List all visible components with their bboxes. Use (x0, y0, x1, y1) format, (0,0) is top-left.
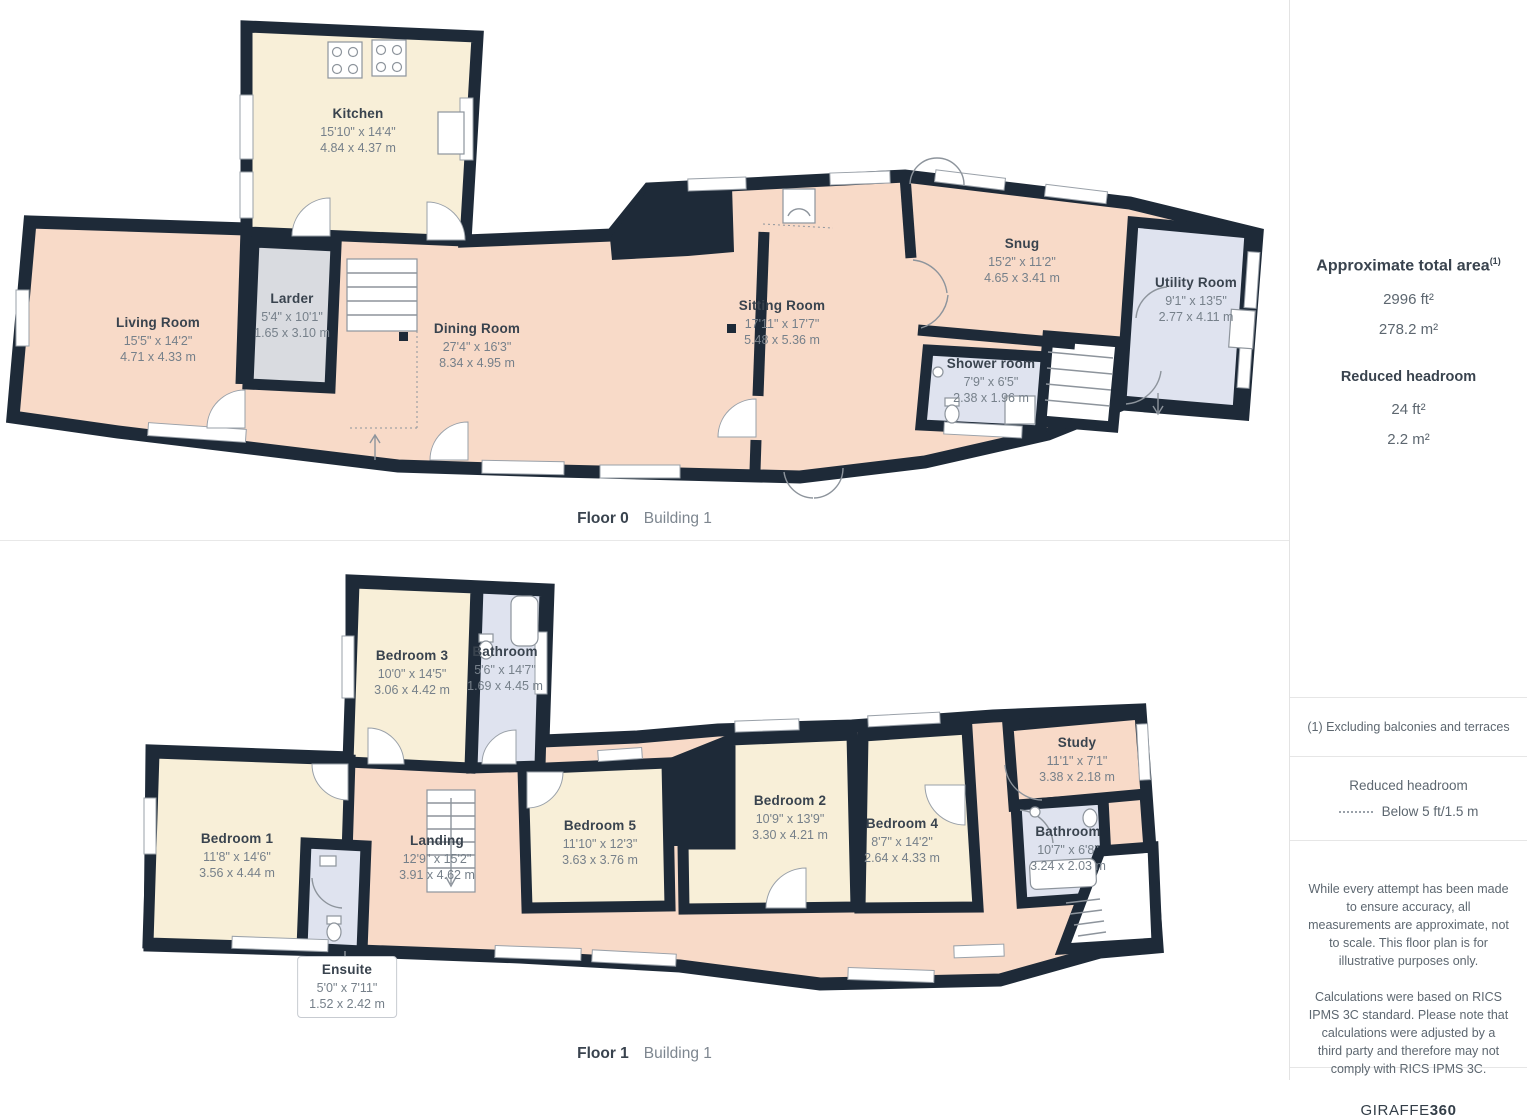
window (16, 290, 29, 346)
disclaimer-section: While every attempt has been made to ens… (1290, 841, 1527, 1068)
floor1-caption: Floor 1 Building 1 (0, 1045, 1289, 1063)
building-label: Building 1 (644, 510, 712, 528)
floorplan-canvas: Kitchen 15'10" x 14'4" 4.84 x 4.37 m Liv… (0, 0, 1289, 1080)
floor0-caption: Floor 0 Building 1 (0, 510, 1289, 528)
bedroom3-room (348, 583, 476, 768)
post (727, 324, 736, 333)
window (830, 171, 890, 185)
window (600, 465, 680, 478)
window (688, 177, 746, 191)
reduced-headroom-ft: 24 ft² (1290, 395, 1527, 425)
window (342, 636, 354, 698)
window (848, 968, 934, 983)
total-area-m: 278.2 m² (1290, 315, 1527, 345)
reduced-headroom-m: 2.2 m² (1290, 425, 1527, 455)
total-area-section: Approximate total area(1) 2996 ft² 278.2… (1290, 0, 1527, 698)
legend-row: Below 5 ft/1.5 m (1339, 804, 1479, 819)
fridge-icon (438, 112, 464, 154)
fireplace-icon (783, 189, 815, 223)
toilet-icon (479, 634, 493, 659)
footnote-section: (1) Excluding balconies and terraces (1290, 698, 1527, 757)
reduced-headroom-title: Reduced headroom (1290, 369, 1527, 385)
total-area-footnote-marker: (1) (1490, 256, 1501, 266)
logo-suffix-text: 360 (1430, 1102, 1457, 1119)
window (144, 798, 156, 854)
legend-title: Reduced headroom (1349, 778, 1468, 793)
sink-icon (1030, 807, 1040, 817)
window (735, 719, 799, 732)
info-sidebar: Approximate total area(1) 2996 ft² 278.2… (1289, 0, 1527, 1080)
dotted-line-icon (1339, 811, 1373, 813)
floor-label: Floor 1 (577, 1045, 629, 1063)
total-area-title-text: Approximate total area (1316, 257, 1489, 274)
footnote-text: (1) Excluding balconies and terraces (1307, 720, 1509, 734)
total-area-ft: 2996 ft² (1290, 285, 1527, 315)
bathtub-icon (1029, 858, 1096, 889)
staircase-floor1 (427, 790, 475, 892)
bathtub-icon (511, 596, 538, 646)
floor0-plan (13, 27, 1260, 498)
legend-label: Below 5 ft/1.5 m (1382, 804, 1479, 819)
window (240, 95, 253, 159)
room-size-imperial: 5'0" x 7'11" (317, 980, 378, 996)
giraffe360-logo: GIRAFFE360 (1308, 1102, 1509, 1119)
legend-section: Reduced headroom Below 5 ft/1.5 m (1290, 757, 1527, 841)
floor-label: Floor 0 (577, 510, 629, 528)
window (954, 944, 1004, 958)
window (1137, 724, 1151, 780)
disclaimer-paragraph-2: Calculations were based on RICS IPMS 3C … (1308, 988, 1509, 1078)
post (399, 332, 408, 341)
toilet-icon (1083, 809, 1097, 827)
total-area-title: Approximate total area(1) (1290, 256, 1527, 275)
toilet-icon (945, 398, 959, 423)
floor1-plan (144, 581, 1157, 984)
room-name: Ensuite (322, 962, 372, 977)
building-label: Building 1 (644, 1045, 712, 1063)
floor-section-divider (0, 540, 1289, 541)
logo-brand-text: GIRAFFE (1360, 1102, 1429, 1119)
wall-mass (610, 186, 734, 260)
sink-icon (320, 856, 336, 866)
room-label-ensuite-callout: Ensuite 5'0" x 7'11" 1.52 x 2.42 m (297, 956, 397, 1018)
window (495, 946, 581, 961)
sink-icon (933, 367, 943, 377)
larder-room (248, 242, 336, 388)
toilet-icon (327, 916, 341, 941)
study-room (1008, 714, 1146, 806)
room-size-metric: 1.52 x 2.42 m (309, 996, 385, 1012)
utility-sink-icon (1229, 309, 1256, 349)
stairwell-floor0 (1041, 336, 1121, 427)
window (482, 460, 564, 474)
window (240, 172, 253, 218)
window (598, 747, 643, 761)
disclaimer-paragraph-1: While every attempt has been made to ens… (1308, 880, 1509, 970)
shower-tray-icon (1005, 396, 1035, 424)
